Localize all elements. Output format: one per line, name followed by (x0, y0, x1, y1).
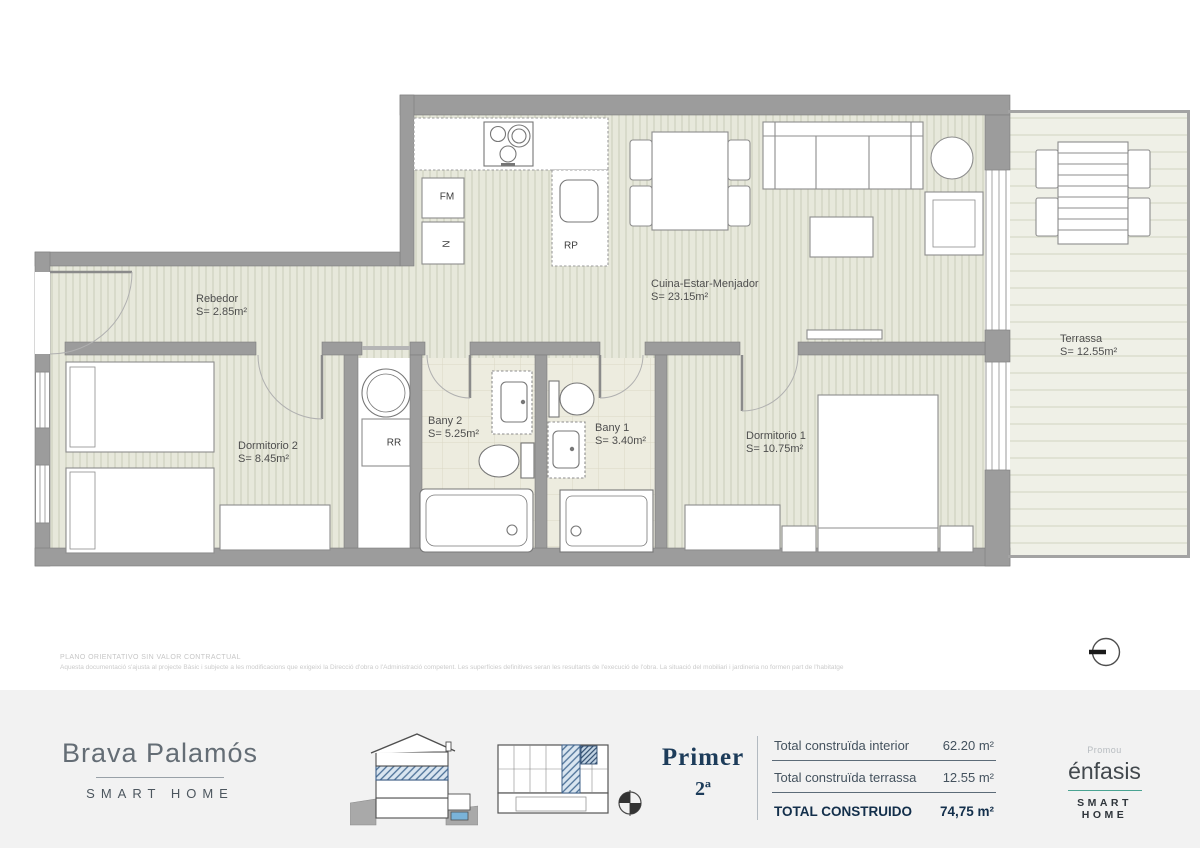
tag-n: N (442, 240, 453, 247)
wardrobe (685, 505, 780, 550)
room-name: Dormitorio 2 (238, 440, 298, 452)
tv-unit (925, 192, 983, 255)
row-label: Total construïda terrassa (774, 770, 916, 785)
table-row: Total construïda interior 62.20 m² (772, 729, 996, 761)
room-area: S= 10.75m² (746, 443, 806, 456)
developer-tagline: SMART HOME (1052, 797, 1157, 821)
compass-icon (619, 790, 641, 816)
room-name: Terrassa (1060, 333, 1102, 345)
cooktop-icon (484, 122, 533, 166)
disclaimer-title: PLANO ORIENTATIVO SIN VALOR CONTRACTUAL (60, 654, 844, 661)
room-label-cuina: Cuina-Estar-Menjador S= 23.15m² (651, 278, 759, 304)
room-area: S= 2.85m² (196, 306, 247, 319)
shower-icon (560, 490, 653, 552)
developer-role: Promou (1052, 745, 1157, 755)
room-area: S= 3.40m² (595, 435, 646, 448)
room-name: Bany 2 (428, 415, 462, 427)
footer: Brava Palamós SMART HOME (0, 690, 1200, 848)
floor-designation: Primer 2ª (653, 744, 753, 801)
nightstand (782, 526, 816, 552)
bed-double (818, 395, 938, 552)
room-label-rebedor: Rebedor S= 2.85m² (196, 293, 247, 319)
room-label-dormitorio1: Dormitorio 1 S= 10.75m² (746, 430, 806, 456)
vertical-divider (757, 736, 758, 820)
room-area: S= 5.25m² (428, 428, 479, 441)
sideboard (807, 330, 882, 339)
orientation-marker-icon (1089, 639, 1120, 666)
brand-logo: Brava Palamós SMART HOME (55, 738, 265, 801)
floor-plan-drawing (0, 0, 1200, 690)
room-label-dormitorio2: Dormitorio 2 S= 8.45m² (238, 440, 298, 466)
room-name: Bany 1 (595, 422, 629, 434)
room-area: S= 23.15m² (651, 291, 759, 304)
room-name: Rebedor (196, 293, 238, 305)
room-name: Cuina-Estar-Menjador (651, 278, 759, 290)
room-area: S= 8.45m² (238, 453, 298, 466)
developer-divider (1068, 790, 1142, 791)
desk (220, 505, 330, 550)
side-table (931, 137, 973, 179)
brand-name: Brava Palamós (55, 738, 265, 769)
bathtub-icon (420, 489, 533, 552)
floor-plan-area: Rebedor S= 2.85m² Cuina-Estar-Menjador S… (0, 0, 1200, 690)
row-value: 62.20 m² (943, 738, 994, 753)
tag-rp: RP (564, 241, 578, 252)
disclaimer-text: Aquesta documentació s'ajusta al project… (60, 664, 844, 671)
developer-logo: Promou énfasis SMART HOME (1052, 745, 1157, 821)
table-row: Total construïda terrassa 12.55 m² (772, 761, 996, 793)
coffee-table (810, 217, 873, 257)
room-label-bany1: Bany 1 S= 3.40m² (595, 422, 646, 448)
sofa (763, 122, 923, 189)
washer-icon (362, 369, 410, 417)
total-label: TOTAL CONSTRUIDO (774, 804, 912, 819)
row-label: Total construïda interior (774, 738, 909, 753)
room-label-bany2: Bany 2 S= 5.25m² (428, 415, 479, 441)
brand-divider (96, 777, 224, 778)
tag-rr: RR (387, 438, 401, 449)
bed-single (66, 362, 214, 452)
row-value: 12.55 m² (943, 770, 994, 785)
key-plan-icon (488, 731, 648, 825)
table-row-total: TOTAL CONSTRUIDO 74,75 m² (772, 793, 996, 826)
sink-vanity (492, 371, 532, 434)
disclaimer: PLANO ORIENTATIVO SIN VALOR CONTRACTUAL … (60, 654, 844, 671)
floor-name: Primer (653, 744, 753, 772)
tag-fm: FM (440, 192, 454, 203)
plan-sheet: Rebedor S= 2.85m² Cuina-Estar-Menjador S… (0, 0, 1200, 848)
toilet-icon (549, 381, 594, 417)
unit-number: 2ª (653, 778, 753, 801)
room-label-terrassa: Terrassa S= 12.55m² (1060, 333, 1117, 359)
room-area: S= 12.55m² (1060, 346, 1117, 359)
areas-table: Total construïda interior 62.20 m² Total… (772, 729, 996, 826)
brand-tagline: SMART HOME (55, 786, 265, 801)
total-value: 74,75 m² (940, 804, 994, 819)
bed-single (66, 468, 214, 553)
building-section-icon (350, 724, 478, 826)
toilet-icon (479, 443, 534, 478)
developer-name: énfasis (1052, 758, 1157, 785)
kitchen-sink-icon (560, 180, 598, 222)
nightstand (940, 526, 973, 552)
sink-vanity (548, 422, 585, 478)
room-name: Dormitorio 1 (746, 430, 806, 442)
